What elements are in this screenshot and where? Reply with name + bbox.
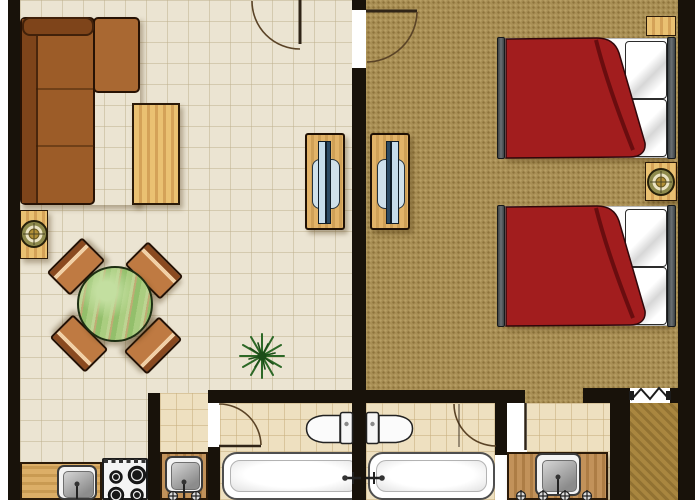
bed-1-pillow-top: [625, 41, 667, 99]
sofa-back-band: [22, 19, 38, 203]
bed-1-footboard: [497, 37, 505, 159]
gas-stove: [102, 458, 148, 500]
tv-screen-living: [318, 141, 326, 224]
closet-door-opening: [630, 388, 670, 403]
bed-2-pillow-top: [625, 209, 667, 267]
nightstand: [645, 162, 677, 201]
bed-2-footboard: [497, 205, 505, 327]
sofa-seam: [36, 145, 94, 147]
side-table-left: [20, 210, 48, 259]
washbasin-left-basin: [171, 462, 200, 490]
bathtub-right-basin: [376, 460, 487, 492]
wall-bathroom-right-top: [366, 390, 525, 403]
wall-divider-top-stub: [352, 0, 366, 10]
wall-bathroom-right-stub: [495, 403, 507, 455]
wall-divider: [352, 68, 366, 500]
wall-nook-left-side: [148, 393, 160, 500]
tv-back-living: [326, 141, 331, 224]
nook-right-door-niche: [507, 403, 527, 452]
kitchen-sink-basin: [63, 471, 94, 498]
washbasin-right: [535, 453, 581, 496]
bed-2-pillow-bottom: [625, 267, 667, 325]
coffee-table: [132, 103, 180, 205]
sofa-chaise-section: [93, 17, 140, 93]
sofa-armrest: [22, 17, 94, 36]
tv-cabinet-bedroom: [370, 133, 410, 230]
wall-closet-jamb: [670, 388, 678, 403]
wall-bathroom-left-door-side: [208, 447, 220, 500]
bathtub-right: [368, 452, 495, 500]
floor-plan: [0, 0, 700, 500]
washbasin-left: [165, 456, 203, 493]
tv-screen-bedroom: [391, 141, 399, 224]
bathtub-left-basin: [230, 460, 358, 492]
wall-right: [678, 0, 695, 500]
wall-left: [8, 0, 20, 500]
bedroom-door-opening: [352, 10, 366, 68]
nightstand-top-sliver: [646, 16, 676, 36]
sofa-seam: [36, 88, 94, 90]
wall-nook-right-side: [610, 403, 630, 500]
bed-1-pillow-bottom: [625, 99, 667, 157]
washbasin-right-basin: [542, 460, 577, 492]
bed-2-headboard: [667, 205, 676, 327]
corner-sofa: [20, 17, 140, 205]
bed-1-headboard: [667, 37, 676, 159]
sofa-seat-section: [20, 17, 95, 205]
kitchen-sink: [57, 465, 97, 500]
closet-floor: [630, 403, 678, 500]
bathroom-left-door-opening: [208, 403, 220, 447]
bathtub-left: [222, 452, 366, 500]
dining-table: [77, 266, 153, 342]
wall-nook-right-cap: [583, 388, 630, 403]
tv-cabinet-living: [305, 133, 345, 230]
wall-bathroom-left-top: [208, 390, 352, 403]
